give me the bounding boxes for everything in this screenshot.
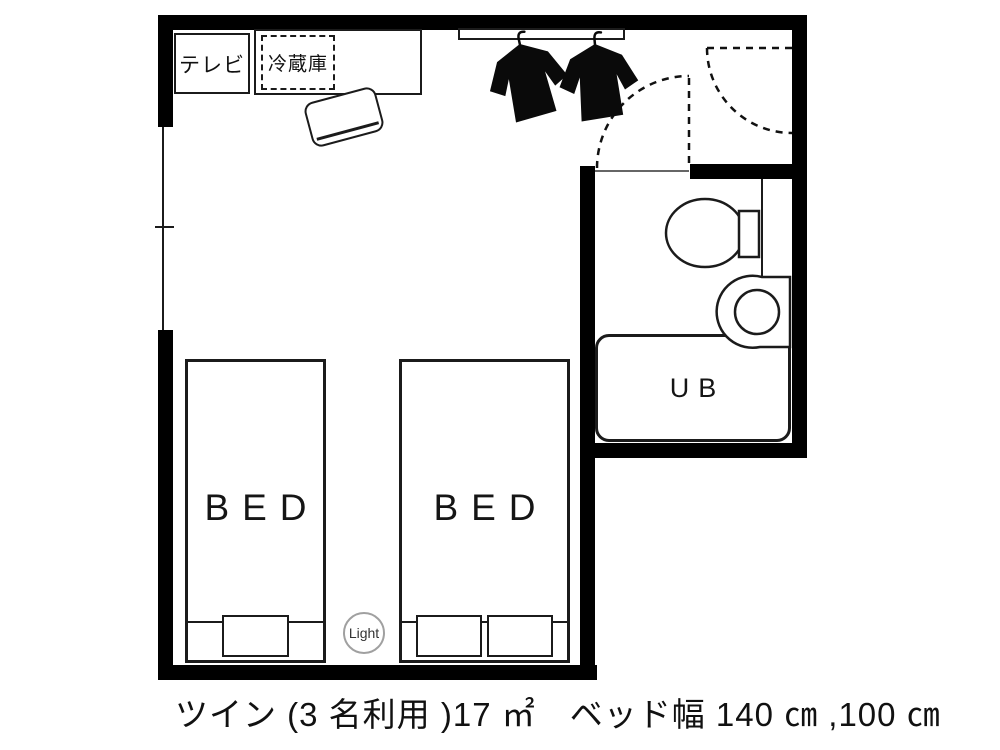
bed-right-label: BED (402, 487, 567, 529)
pillow (222, 615, 289, 657)
tv-label: テレビ (179, 49, 245, 79)
wall-bathroom-left (580, 166, 595, 680)
tv-stand: テレビ (174, 33, 250, 94)
door-swing-arc-icon (707, 48, 792, 133)
bed-left-label: BED (188, 487, 323, 529)
window-line (162, 127, 164, 330)
closet-rod (458, 28, 625, 40)
fridge-box: 冷蔵庫 (261, 35, 335, 90)
wall-left-upper (158, 15, 173, 127)
wall-entry-bottom (690, 164, 807, 179)
unit-bath-label: UB (661, 373, 726, 404)
ceiling-light-marker: Light (343, 612, 385, 654)
window-mullion-tick (155, 226, 174, 228)
pillow (487, 615, 553, 657)
door-swing-arc-icon (597, 76, 689, 168)
unit-bath: UB (595, 334, 791, 442)
room-caption: ツイン (3 名利用 )17 ㎡ ベッド幅 140 ㎝ ,100 ㎝ (175, 688, 941, 736)
wall-bottom (158, 665, 597, 680)
wall-bathroom-bottom (580, 443, 807, 458)
light-label: Light (349, 625, 379, 641)
wall-right (792, 15, 807, 458)
pillow (416, 615, 482, 657)
hanging-jacket-icon (555, 29, 641, 123)
fridge-label: 冷蔵庫 (268, 49, 328, 76)
wall-left-lower (158, 330, 173, 680)
hotel-room-floorplan: テレビ 冷蔵庫 BED BED Light UB (0, 0, 1000, 750)
toilet-icon (666, 179, 762, 277)
